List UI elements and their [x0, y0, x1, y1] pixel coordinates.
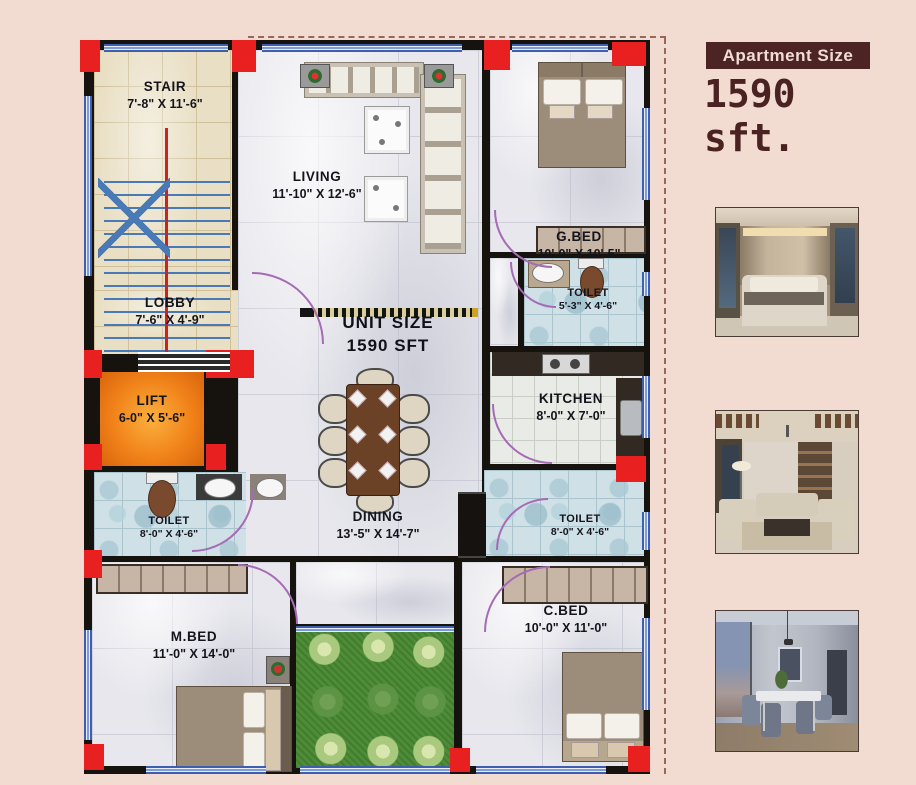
room-label-living: LIVING11'-10" X 12'-6": [248, 168, 386, 202]
sofa-cushions: [425, 79, 461, 249]
photo-floor: [716, 723, 858, 751]
table-decor: [393, 205, 399, 211]
window: [84, 96, 92, 276]
photo-throw: [744, 292, 824, 305]
room-label-toilet-left: TOILET8'-0" X 4'-6": [104, 514, 234, 542]
room-label-lift: LIFT6-0" X 5'-6": [104, 392, 200, 426]
room-label-lobby: LOBBY7'-6" X 4'-9": [100, 294, 240, 328]
column: [612, 42, 646, 66]
bolster: [265, 689, 281, 771]
column: [450, 748, 470, 772]
photo-fretwork: [815, 414, 858, 428]
apartment-size-badge: Apartment Size: [706, 42, 870, 69]
window: [300, 766, 450, 774]
window: [104, 44, 228, 52]
flower: [432, 69, 446, 83]
column: [84, 550, 102, 578]
flower: [271, 662, 285, 676]
table-decor: [373, 115, 379, 121]
column: [206, 444, 226, 470]
entry-threshold: [138, 352, 230, 372]
gbed-bed: [538, 62, 626, 168]
room-label-toilet-right: TOILET8'-0" X 4'-6": [522, 512, 638, 540]
floor-plan-flyer: STAIR7'-8" X 11'-6" LIVING11'-10" X 12'-…: [0, 0, 916, 785]
dining-chair: [396, 394, 430, 424]
plant-pot: [300, 64, 330, 88]
room-label-toilet-top: TOILET5'-3" X 4'-6": [536, 286, 640, 314]
column: [616, 456, 646, 482]
pillow: [543, 79, 581, 105]
column: [628, 746, 650, 772]
dining-chair: [396, 458, 430, 488]
mbed-bed: [176, 686, 292, 772]
photo-pendant-shade: [784, 639, 793, 645]
photo-table-leg: [813, 701, 815, 732]
photo-sofa: [756, 493, 818, 516]
property-line-right: [664, 38, 666, 774]
column: [84, 350, 102, 378]
photo-table-top: [756, 691, 821, 701]
living-room-photo: [715, 410, 859, 554]
photo-window: [719, 228, 736, 307]
room-label-gbed: G.BED10'-0" X 10'-5": [518, 228, 640, 262]
garden-floor: [296, 630, 454, 768]
stove: [542, 354, 590, 374]
wc-bowl: [148, 480, 176, 518]
pillow: [243, 732, 265, 768]
photo-cove-light: [743, 228, 827, 236]
flower: [308, 69, 322, 83]
window: [262, 44, 462, 52]
dining-room-photo: [715, 610, 859, 752]
property-line-top: [248, 36, 666, 38]
window: [476, 766, 606, 774]
stair-cross: [98, 178, 170, 258]
cushion: [587, 105, 613, 119]
window: [296, 626, 454, 632]
burner: [550, 359, 560, 369]
room-label-mbed: M.BED11'-0" X 14'-0": [118, 628, 270, 662]
photo-lamp-shade: [732, 461, 752, 471]
wash-basin: [256, 478, 284, 498]
photo-coffee-table: [764, 519, 809, 536]
pillow: [566, 713, 602, 739]
window: [642, 272, 650, 296]
window: [84, 630, 92, 740]
photo-pillows: [750, 277, 818, 292]
room-label-kitchen: KITCHEN8'-0" X 7'-0": [510, 390, 632, 424]
window: [642, 618, 650, 710]
unit-size-label: UNIT SIZE1590 SFT: [318, 312, 458, 358]
table-decor: [379, 139, 385, 145]
window: [146, 766, 266, 774]
column: [232, 40, 256, 72]
pillow: [585, 79, 623, 105]
photo-chandelier: [786, 425, 789, 437]
photo-plant: [773, 667, 790, 692]
room-label-dining: DINING13'-5" X 14'-7": [314, 508, 442, 542]
table-decor: [395, 121, 401, 127]
kitchen-counter-top: [492, 352, 644, 376]
window: [642, 512, 650, 550]
sofa-right: [420, 74, 466, 254]
photo-window: [835, 228, 855, 302]
column: [84, 444, 102, 470]
column: [80, 40, 100, 72]
headboard: [281, 687, 291, 771]
photo-table-leg: [763, 701, 765, 732]
utility-unit: [458, 492, 486, 558]
room-label-stair: STAIR7'-8" X 11'-6": [100, 78, 230, 112]
column: [84, 744, 104, 770]
pillow: [243, 692, 265, 728]
room-label-cbed: C.BED10'-0" X 11'-0": [490, 602, 642, 636]
window: [642, 376, 650, 438]
side-table: [364, 106, 410, 154]
plant-pot: [424, 64, 454, 88]
pillow: [604, 713, 640, 739]
photo-fretwork: [716, 414, 759, 428]
column: [484, 40, 510, 70]
window: [512, 44, 608, 52]
rear-passage-floor: [296, 562, 454, 624]
burner: [570, 359, 580, 369]
dining-chair: [396, 426, 430, 456]
apartment-size-value: 1590 sft.: [704, 72, 884, 160]
photo-pendant-cord: [787, 611, 788, 642]
bedroom-photo: [715, 207, 859, 337]
cushion: [571, 742, 599, 758]
mbed-wardrobe: [96, 564, 248, 594]
window: [642, 108, 650, 200]
cushion: [549, 105, 575, 119]
